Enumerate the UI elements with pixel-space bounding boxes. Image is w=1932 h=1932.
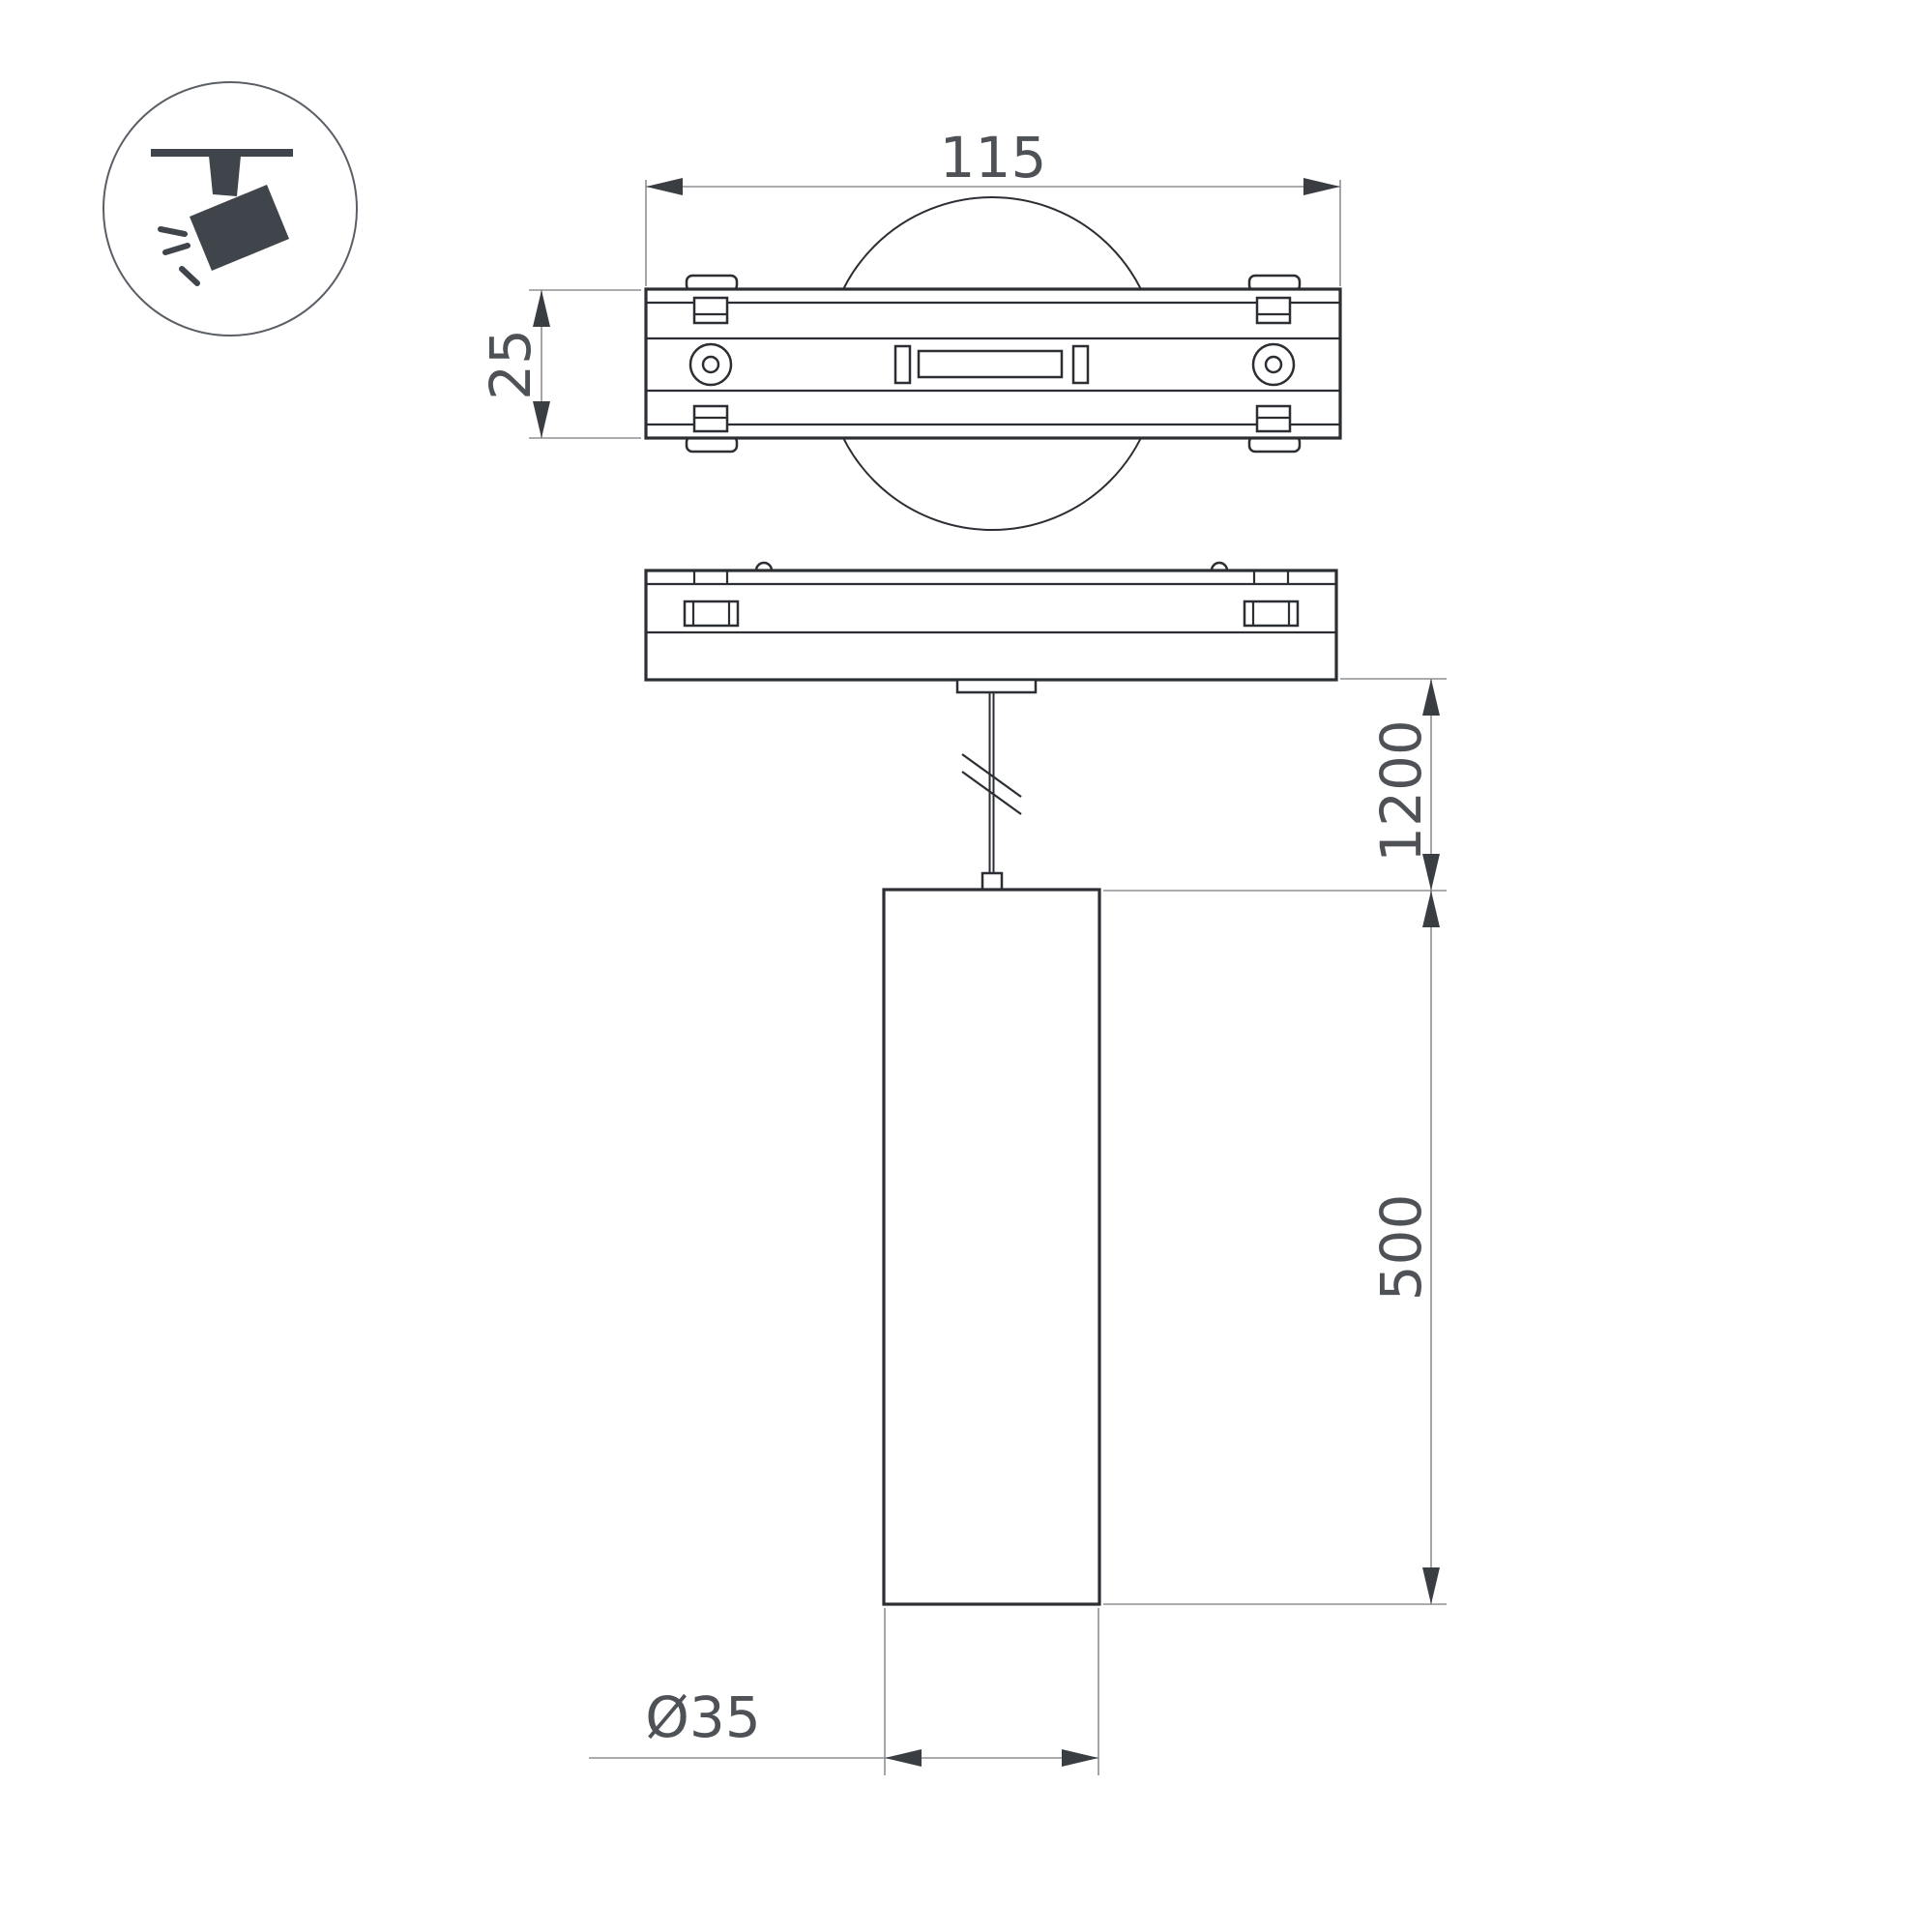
dimension-drawing: 115 25 [0,0,1932,1932]
arrow-left [885,1749,922,1767]
arrow-down [1422,1567,1440,1604]
icon-light-ray [182,269,197,283]
latch-clip-side [685,601,738,626]
arrow-up [1422,891,1440,927]
dim-suspension-label: 1200 [1368,719,1434,863]
suspension-cord [962,692,1021,890]
dimension-width: 115 [646,125,1340,286]
break-symbol [962,754,1021,797]
lamp-body [884,890,1099,1604]
track-adapter-side-view [646,563,1336,692]
screw-icon [690,344,731,385]
dim-diameter-label: Ø35 [645,1684,760,1750]
latch-clip [694,298,727,323]
track-adapter-top-view [646,197,1340,530]
dim-width-label: 115 [940,125,1047,190]
dimension-diameter: Ø35 [589,1608,1098,1775]
latch-clip [1257,406,1290,431]
dim-depth-label: 25 [478,329,543,400]
arrow-left [646,178,683,195]
screw-icon [1253,344,1294,385]
latch-clip [1257,298,1290,323]
cord-gripper [982,873,1002,890]
suspension-plate [957,680,1036,692]
latch-clip [694,406,727,431]
arrow-right [1303,178,1340,195]
contact-slot [895,346,1088,383]
dimension-body-height: 500 [1103,891,1447,1604]
icon-light-ray [165,246,188,252]
arrow-right [1062,1749,1098,1767]
icon-ceiling-bar [151,149,293,157]
pendant-cylinder [884,890,1099,1604]
latch-clip-side [1244,601,1298,626]
track-spotlight-icon [103,82,357,336]
dim-body-height-label: 500 [1368,1194,1434,1302]
adapter-side-body [646,571,1336,680]
dimension-suspension: 1200 [1103,679,1447,891]
icon-mount-stem [209,156,241,196]
arrow-down [533,401,550,438]
arrow-up [1422,679,1440,716]
icon-light-ray [161,229,185,234]
icon-lamp-body [190,185,289,271]
arrow-up [533,290,550,327]
break-symbol [962,772,1021,814]
drawing-canvas: 115 25 [0,0,1932,1932]
dimension-depth: 25 [478,290,641,438]
